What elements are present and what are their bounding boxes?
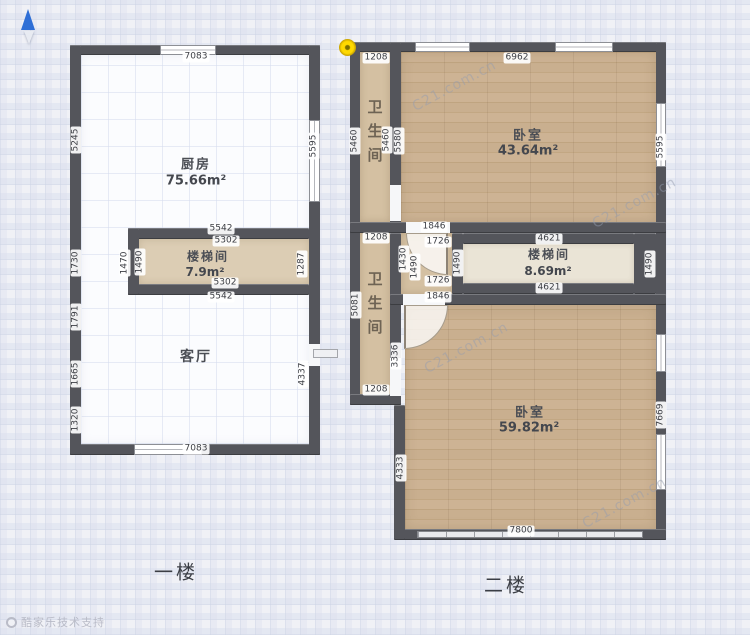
dim-label: 5595 [656,134,667,161]
dim-label: 7083 [183,52,210,63]
dim-label: 4621 [536,234,563,245]
dim-label: 1208 [363,233,390,244]
room-area-bedroom-bottom: 59.82m² [499,421,559,436]
dim-label: 5302 [213,236,240,247]
door-opening [390,185,401,221]
dim-label: 7800 [508,526,535,537]
dim-label: 5302 [212,278,239,289]
wall [309,45,320,455]
dim-label: 5245 [71,127,82,154]
dim-label: 1470 [120,250,131,277]
window [415,42,470,52]
room-name-stairwell2: 楼梯间 [528,246,570,263]
compass-south-needle [24,31,34,44]
dim-label: 6962 [504,53,531,64]
dim-label: 4337 [298,361,309,388]
dim-label: 1490 [645,251,656,278]
dim-label: 4621 [536,283,563,294]
room-name-bedroom-top: 卧室 [513,125,543,144]
dim-label: 5595 [309,133,320,160]
dim-label: 1208 [363,53,390,64]
room-area-bedroom-top: 43.64m² [498,144,558,159]
dim-label: 1490 [410,254,421,281]
window [656,334,666,372]
floor1-caption: 一楼 [154,558,198,585]
wall [350,222,666,233]
dim-label: 1791 [71,304,82,331]
dim-label: 7083 [183,444,210,455]
room-name-kitchen: 厨房 [181,154,211,173]
dim-label: 1730 [71,250,82,277]
dim-label: 5580 [394,128,405,155]
dim-label: 3336 [391,343,402,370]
dim-label: 1726 [425,237,452,248]
yellow-point-marker-icon [339,39,356,56]
credit-text: 酷家乐技术支持 [21,614,105,630]
room-area-kitchen: 75.66m² [166,174,226,189]
dim-label: 1665 [71,361,82,388]
dim-label: 5460 [350,128,361,155]
dim-label: 1726 [425,276,452,287]
window [555,42,613,52]
floor2-caption: 二楼 [484,571,528,598]
dim-label: 1320 [71,407,82,434]
room-area-stairwell2: 8.69m² [524,264,571,278]
dim-label: 5460 [382,127,393,154]
dim-label: 1208 [363,385,390,396]
door-leaf [313,349,338,358]
room-name-stairwell: 楼梯间 [187,248,229,265]
dim-label: 1846 [425,292,452,303]
dim-label: 4333 [396,455,407,482]
dim-label: 1490 [135,249,146,276]
dim-label: 1287 [297,251,308,278]
compass-north-needle [21,9,35,30]
dim-label: 7669 [656,402,667,429]
dim-label: 1430 [399,246,410,273]
credit-watermark: 酷家乐技术支持 [6,614,105,630]
room-name-living: 客厅 [180,346,212,366]
dim-label: 5542 [208,224,235,235]
dim-label: 5081 [351,292,362,319]
dim-label: 1846 [421,222,448,233]
dim-label: 5542 [208,292,235,303]
brand-logo-icon [6,617,17,628]
floorplan-canvas: 厨房 75.66m² 楼梯间 7.9m² 客厅 7083 5245 5595 5… [0,0,750,635]
dim-label: 1490 [453,250,464,277]
room-name-bath-mid: 卫生间 [365,271,386,343]
room-name-bedroom-bottom: 卧室 [515,402,545,421]
